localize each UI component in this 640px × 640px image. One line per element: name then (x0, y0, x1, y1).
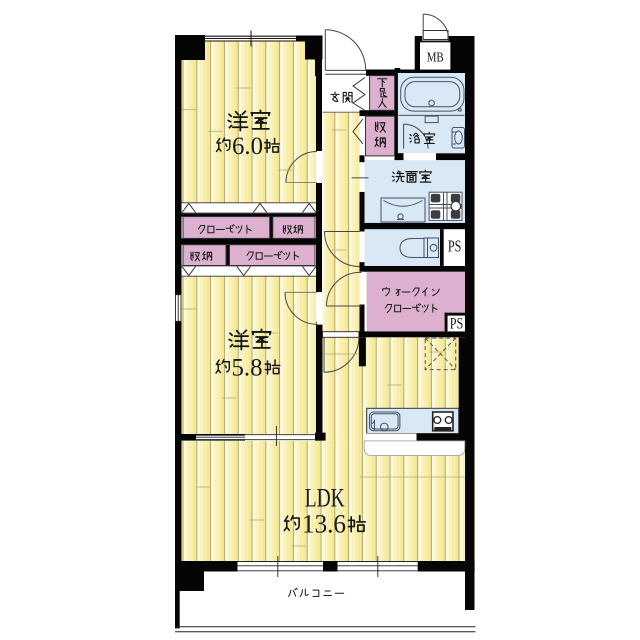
svg-text:LDK: LDK (305, 484, 345, 513)
svg-text:13.6: 13.6 (302, 510, 346, 539)
svg-text:MB: MB (427, 51, 444, 66)
svg-text:PS: PS (448, 237, 462, 256)
svg-text:5.8: 5.8 (232, 355, 263, 382)
svg-text:PS: PS (450, 315, 464, 332)
svg-text:6.0: 6.0 (232, 133, 263, 160)
